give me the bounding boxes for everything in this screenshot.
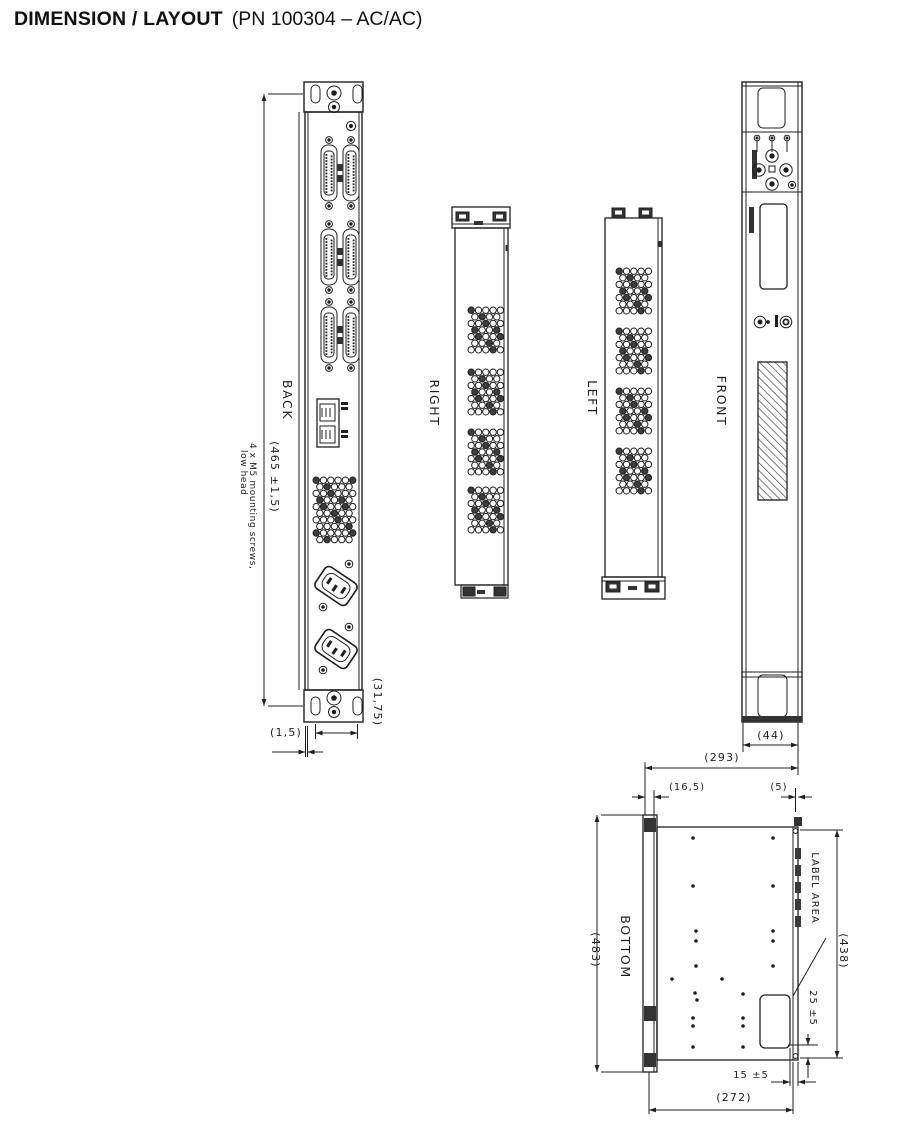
dim-back-hole-pitch: (31,75) xyxy=(371,678,384,726)
right-view-graphics xyxy=(452,207,510,598)
dimension-drawing: BACK RIGHT LEFT FRONT BOTTOM (465 ±1,5) … xyxy=(0,0,916,1148)
mounting-note-line2: low head xyxy=(238,450,248,496)
page: { "title": { "main": "DIMENSION / LAYOUT… xyxy=(0,0,916,1148)
left-view-graphics xyxy=(602,208,665,599)
back-view-graphics xyxy=(262,82,363,757)
dim-back-height: (465 ±1,5) xyxy=(268,441,281,513)
dim-label-area-offset-bottom: 25 ±5 xyxy=(807,990,818,1026)
dim-depth-overall: (293) xyxy=(704,751,740,764)
left-view-label: LEFT xyxy=(585,380,600,416)
front-view-label: FRONT xyxy=(714,376,729,427)
dim-inset-right: (5) xyxy=(770,782,787,793)
dim-label-area-offset-right: 15 ±5 xyxy=(733,1070,769,1081)
dim-panel-width: (483) xyxy=(589,932,602,968)
dim-body-depth: (272) xyxy=(716,1091,752,1104)
label-area-annotation: LABEL AREA xyxy=(809,852,820,924)
bottom-view-label: BOTTOM xyxy=(618,915,633,978)
dim-front-width: (44) xyxy=(757,729,784,742)
back-view-label: BACK xyxy=(280,380,295,420)
dim-back-panel-offset: (1,5) xyxy=(270,726,302,739)
dim-body-width: (438) xyxy=(837,933,850,969)
dim-inset-left: (16,5) xyxy=(669,782,705,793)
right-view-label: RIGHT xyxy=(427,379,442,426)
front-view-graphics xyxy=(742,82,802,775)
